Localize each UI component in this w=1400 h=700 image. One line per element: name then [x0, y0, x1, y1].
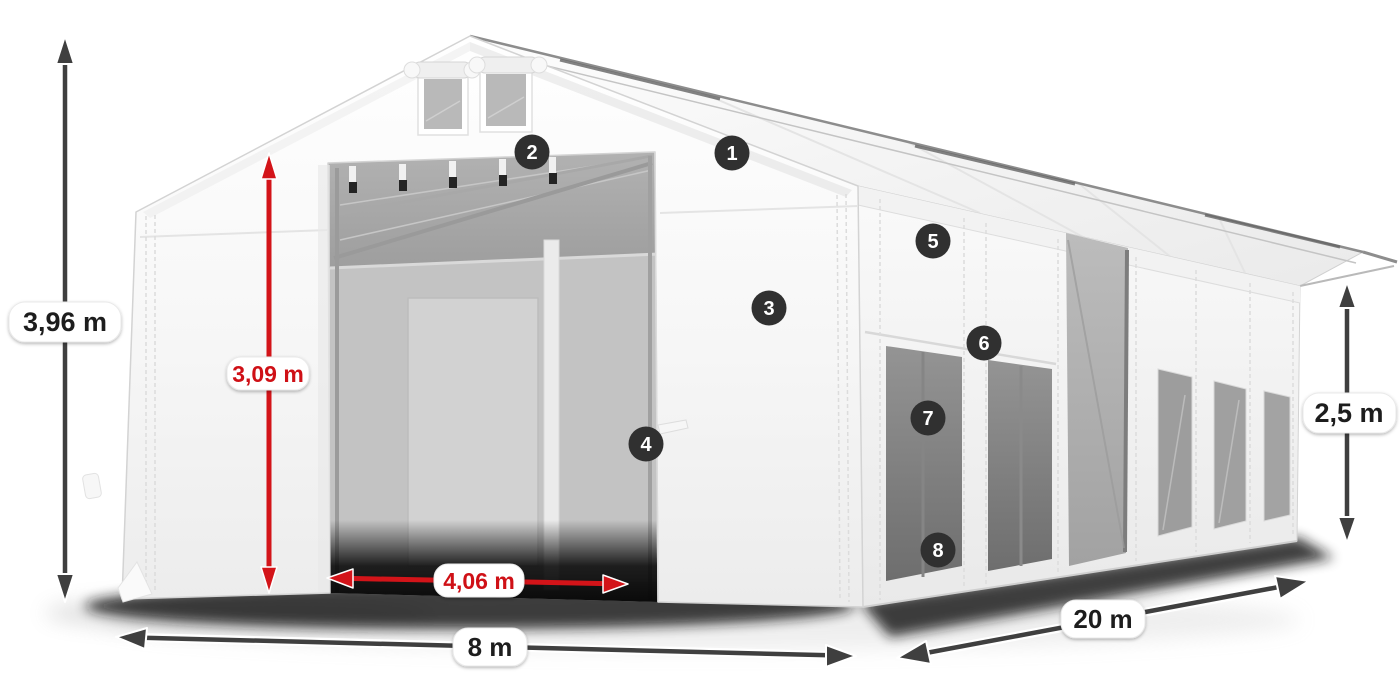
dim-value-door-width: 4,06 m — [443, 568, 515, 594]
door-jamb-left — [318, 165, 330, 592]
svg-text:7: 7 — [922, 408, 933, 430]
tent-interior — [318, 138, 666, 612]
svg-text:8: 8 — [932, 540, 943, 562]
tent-diagram-stage: 3,96 m 2,5 m 8 m 20 m — [0, 0, 1400, 700]
roll-up-cover — [412, 62, 472, 78]
badge-1: 1 — [715, 136, 750, 171]
dim-value-front-width: 8 m — [468, 632, 513, 662]
svg-text:4: 4 — [640, 434, 652, 456]
badge-4: 4 — [629, 427, 664, 462]
dim-value-door-height: 3,09 m — [232, 361, 304, 387]
wall-strap-tab — [82, 473, 102, 499]
dim-value-side-height: 2,5 m — [1314, 398, 1383, 428]
svg-text:2: 2 — [526, 142, 537, 164]
tent-diagram: 3,96 m 2,5 m 8 m 20 m — [0, 0, 1400, 700]
badge-7: 7 — [911, 401, 946, 436]
side-window-3 — [1264, 391, 1290, 521]
badge-2: 2 — [515, 135, 550, 170]
badge-3: 3 — [752, 291, 787, 326]
roll-up-cover — [477, 57, 539, 73]
svg-text:5: 5 — [927, 231, 938, 253]
rear-ridge-end — [1363, 252, 1397, 262]
svg-text:1: 1 — [726, 143, 737, 165]
badge-5: 5 — [916, 224, 951, 259]
dim-total-height: 3,96 m — [9, 36, 121, 602]
dim-value-length: 20 m — [1073, 604, 1132, 634]
svg-text:6: 6 — [978, 333, 989, 355]
svg-text:3: 3 — [763, 298, 774, 320]
dim-value-total-height: 3,96 m — [23, 307, 107, 337]
badge-8: 8 — [921, 533, 956, 568]
dim-side-height: 2,5 m — [1303, 282, 1396, 543]
badge-6: 6 — [967, 326, 1002, 361]
